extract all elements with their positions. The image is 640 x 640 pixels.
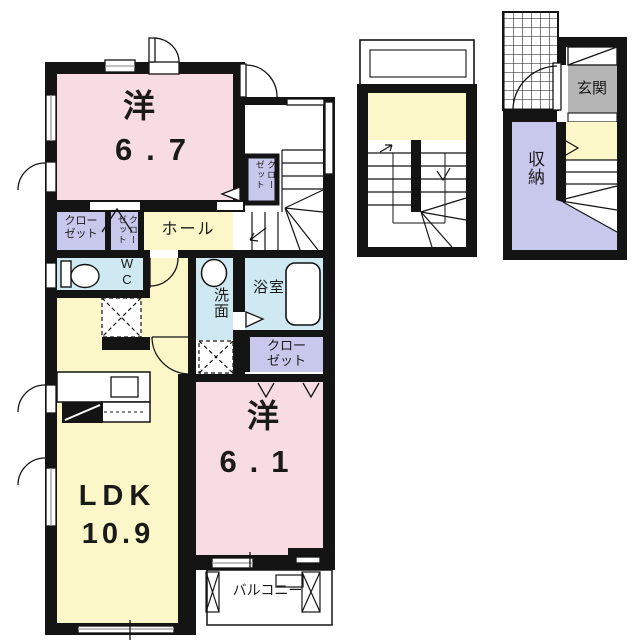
entrance-step	[568, 113, 617, 122]
window	[46, 385, 56, 413]
entrance-label: 玄関	[566, 80, 618, 97]
closet-south-label: クロー ゼット	[250, 339, 323, 369]
storage-label: 収納	[515, 150, 545, 210]
porch-hatch	[503, 12, 558, 110]
window	[325, 102, 333, 174]
bedroom1-label: 洋	[109, 88, 169, 125]
toilet-tank	[61, 261, 71, 287]
door-sill	[149, 62, 179, 74]
kitchen-counter	[57, 372, 150, 423]
sink	[202, 260, 227, 287]
stairs-direction-arrow	[380, 145, 392, 152]
ldk-label: LDK	[55, 480, 180, 513]
entrance-plan	[503, 12, 627, 260]
bathroom-label: 浴室	[246, 279, 292, 296]
ldk-area: 10.9	[48, 518, 188, 551]
floor-plan-canvas: 洋 6.7 クロー ゼット クローゼット ホール クローゼット W C 洗面 浴…	[0, 0, 640, 640]
door-leaf	[240, 64, 246, 97]
hall-label: ホール	[145, 221, 232, 239]
window	[46, 162, 56, 192]
door-leaf	[149, 38, 155, 62]
balcony-label: バルコニー	[215, 582, 320, 598]
door-swing	[155, 38, 179, 62]
window	[287, 99, 324, 105]
wc-label: W C	[111, 256, 143, 289]
washroom-label: 洗面	[203, 287, 229, 331]
door-swing	[246, 65, 277, 97]
kitchen-sink	[111, 377, 138, 397]
bedroom2-area: 6.1	[198, 444, 323, 480]
staircase-plan	[357, 40, 477, 257]
window	[296, 557, 320, 563]
closet-stair-label: クローゼット	[250, 160, 276, 192]
closet-nw-label: クロー ゼット	[57, 215, 105, 240]
stair-landing-floor	[368, 93, 466, 140]
window	[46, 263, 56, 288]
entrance-door-leaf	[553, 63, 561, 110]
stair-landing-floor	[566, 122, 617, 160]
door-swing	[18, 163, 45, 190]
stairs-direction-arrow	[437, 168, 450, 180]
door-swing	[18, 458, 45, 485]
bedroom1-area: 6.7	[85, 132, 230, 168]
washer-space	[199, 341, 233, 373]
door-swing	[18, 385, 45, 412]
closet-nw2-label: クローゼット	[113, 215, 138, 247]
bedroom2-label: 洋	[233, 398, 293, 435]
toilet	[71, 265, 99, 288]
refrigerator-space	[102, 298, 141, 337]
